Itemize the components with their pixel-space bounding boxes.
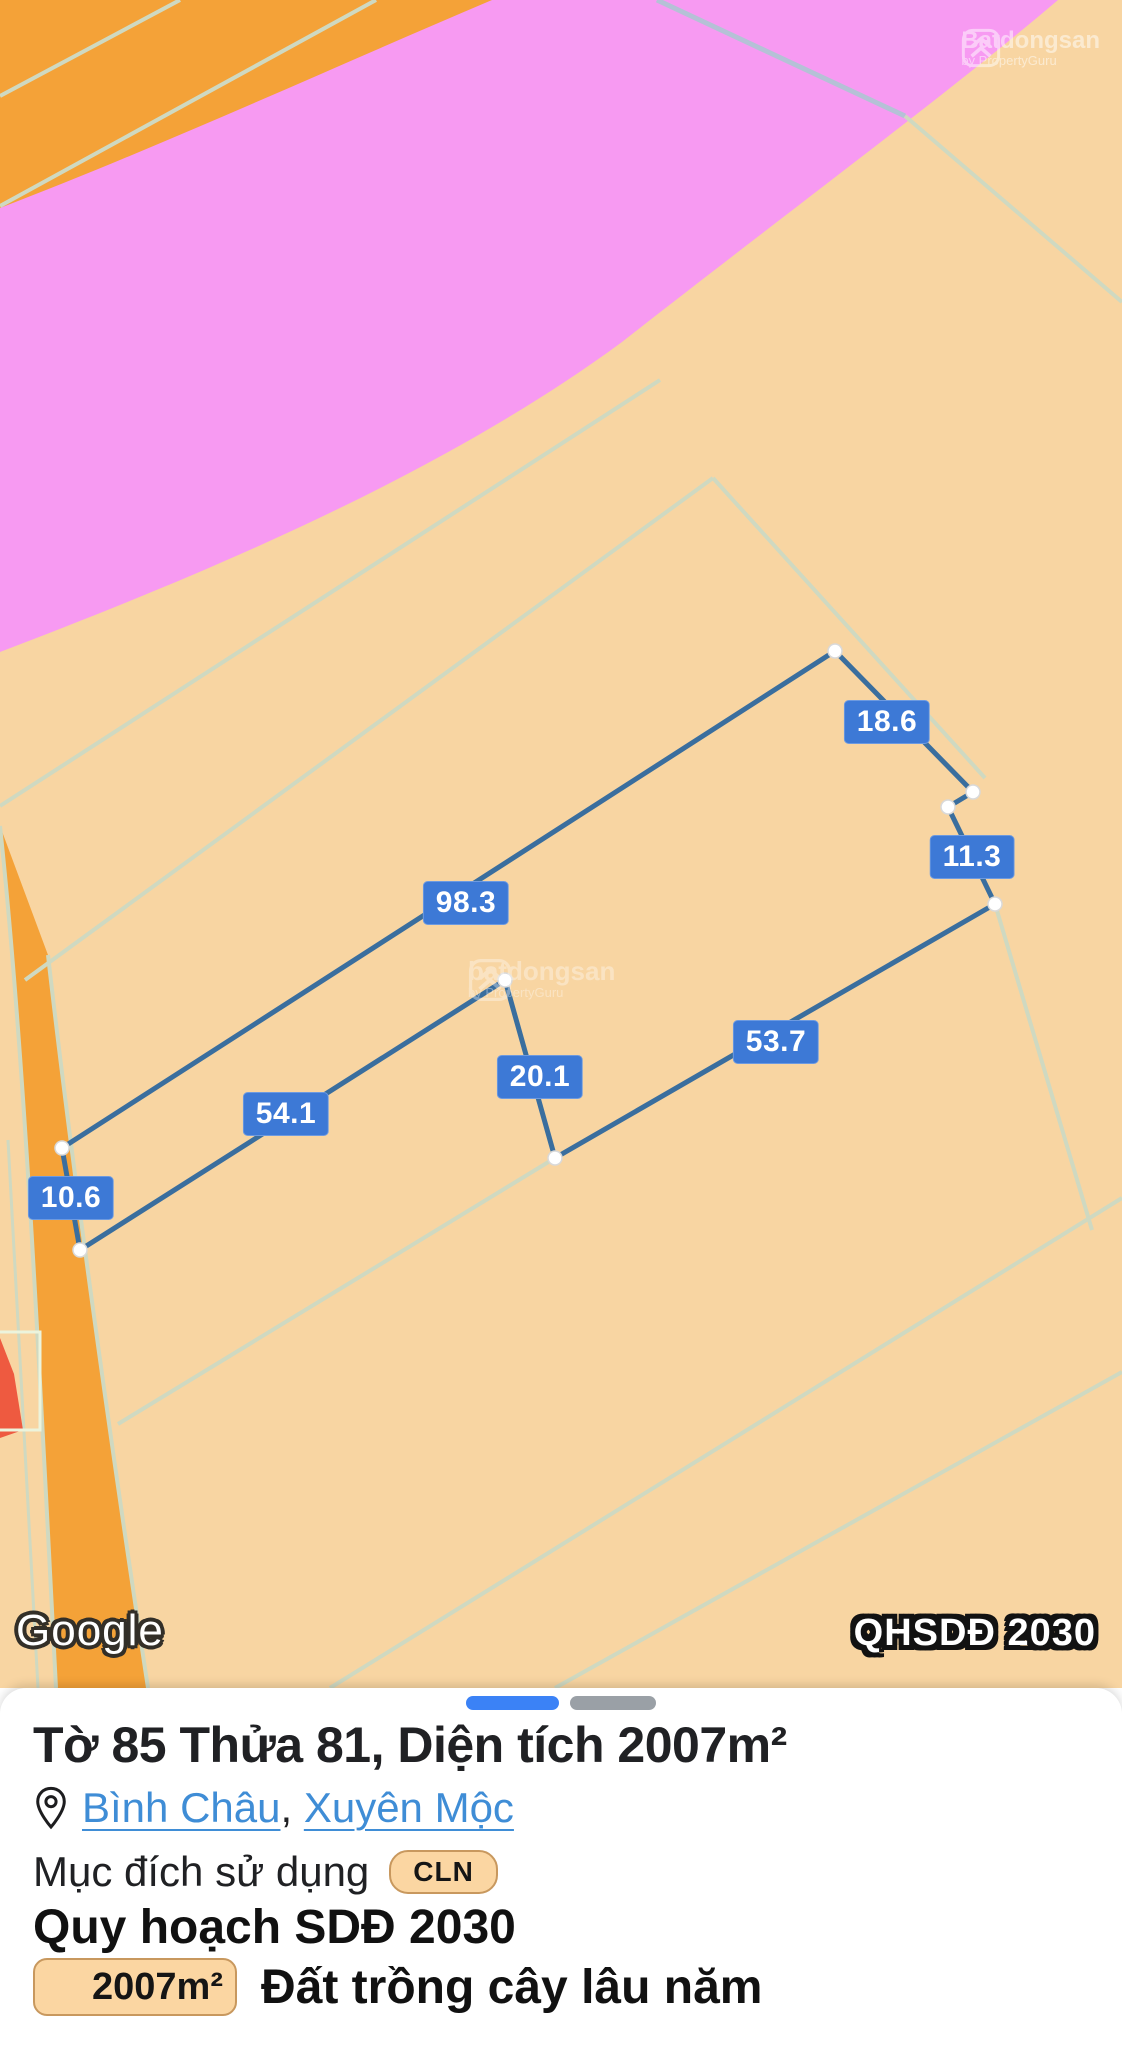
parcel-title: Tờ 85 Thửa 81, Diện tích 2007m² [33,1716,787,1774]
zoning-map[interactable]: 18.611.398.353.720.154.110.6 batdongsan … [0,0,1122,1688]
parcel-vertex-handle[interactable] [966,785,980,799]
edge-length-label: 18.6 [844,700,930,744]
parcel-vertex-handle[interactable] [988,897,1002,911]
edge-length-label: 53.7 [733,1020,819,1064]
plan-heading: Quy hoạch SDĐ 2030 [33,1900,516,1955]
batdongsan-logo-icon [961,28,1001,68]
watermark-top-right: Batdongsan by PropertyGuru [961,28,1100,68]
land-use-type: Đất trồng cây lâu năm [261,1960,762,2015]
edge-length-label: 20.1 [497,1055,583,1099]
purpose-code-badge: CLN [389,1850,498,1894]
area-badge: 2007m² [33,1958,237,2016]
ward-link[interactable]: Bình Châu [82,1784,280,1831]
district-link[interactable]: Xuyên Mộc [304,1784,514,1831]
plan-overlay-badge: QHSDĐ 2030 [854,1612,1096,1655]
edge-length-label: 54.1 [243,1092,329,1136]
parcel-info-panel[interactable]: Tờ 85 Thửa 81, Diện tích 2007m² Bình Châ… [0,1688,1122,2048]
google-logo: Google [16,1606,164,1656]
parcel-vertex-handle[interactable] [548,1151,562,1165]
parcel-vertex-handle[interactable] [73,1243,87,1257]
parcel-vertex-handle[interactable] [828,644,842,658]
page-indicator-active[interactable] [466,1696,559,1710]
screen: 18.611.398.353.720.154.110.6 batdongsan … [0,0,1122,2048]
edge-length-label: 10.6 [28,1176,114,1220]
page-indicator [0,1696,1122,1710]
parcel-vertex-handle[interactable] [941,800,955,814]
location-links: Bình Châu, Xuyên Mộc [82,1784,514,1832]
edge-length-label: 11.3 [930,835,1015,879]
parcel-vertex-handle[interactable] [55,1141,69,1155]
batdongsan-logo-icon [468,958,512,1002]
purpose-row: Mục đích sử dụng CLN [33,1848,498,1896]
land-use-row: 2007m² Đất trồng cây lâu năm [33,1958,762,2016]
page-indicator-idle[interactable] [570,1696,656,1710]
purpose-label: Mục đích sử dụng [33,1848,369,1896]
location-separator: , [280,1784,292,1831]
edge-length-label: 98.3 [423,881,509,925]
watermark-center: batdongsan by PropertyGuru [468,958,615,1000]
location-pin-icon [36,1786,66,1830]
location-row: Bình Châu, Xuyên Mộc [36,1784,514,1832]
